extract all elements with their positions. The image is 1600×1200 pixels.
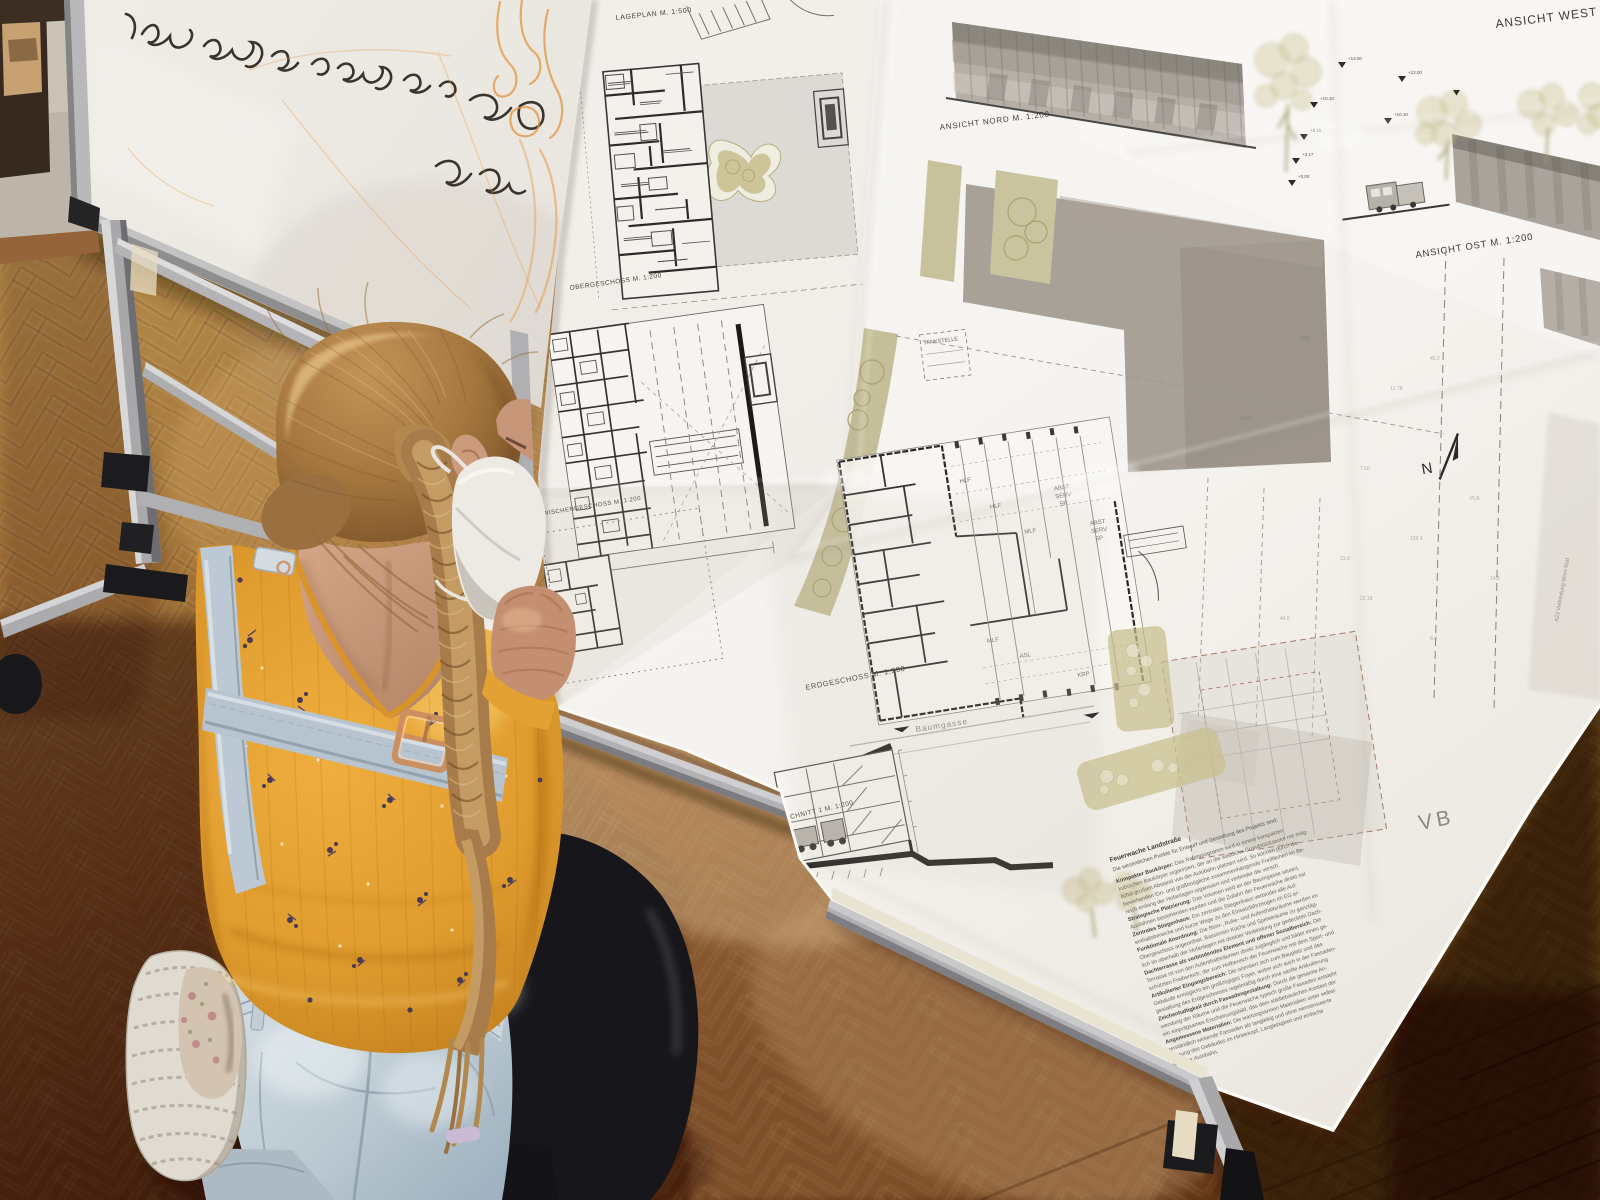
svg-text:+13.00: +13.00 bbox=[1348, 56, 1362, 61]
svg-text:+10.10: +10.10 bbox=[1320, 96, 1334, 101]
svg-text:+13.00: +13.00 bbox=[1408, 70, 1422, 75]
svg-text:22.18: 22.18 bbox=[1360, 596, 1373, 602]
svg-text:5.80: 5.80 bbox=[1300, 336, 1310, 342]
svg-text:+10.10: +10.10 bbox=[1394, 112, 1408, 117]
svg-text:PLA: PLA bbox=[1470, 496, 1480, 502]
svg-text:12.78: 12.78 bbox=[1390, 386, 1403, 392]
svg-text:7.50: 7.50 bbox=[1360, 466, 1370, 472]
svg-text:45.2: 45.2 bbox=[1430, 356, 1440, 362]
svg-text:14.2: 14.2 bbox=[1490, 576, 1500, 582]
svg-text:44.8: 44.8 bbox=[1280, 616, 1290, 622]
svg-text:31.0: 31.0 bbox=[1340, 556, 1350, 562]
svg-text:19.65: 19.65 bbox=[1240, 416, 1253, 422]
svg-text:128.4: 128.4 bbox=[1410, 536, 1423, 542]
svg-text:+3.17: +3.17 bbox=[1302, 152, 1314, 157]
svg-text:8.4: 8.4 bbox=[1430, 636, 1437, 642]
svg-text:+0.00: +0.00 bbox=[1298, 174, 1310, 179]
